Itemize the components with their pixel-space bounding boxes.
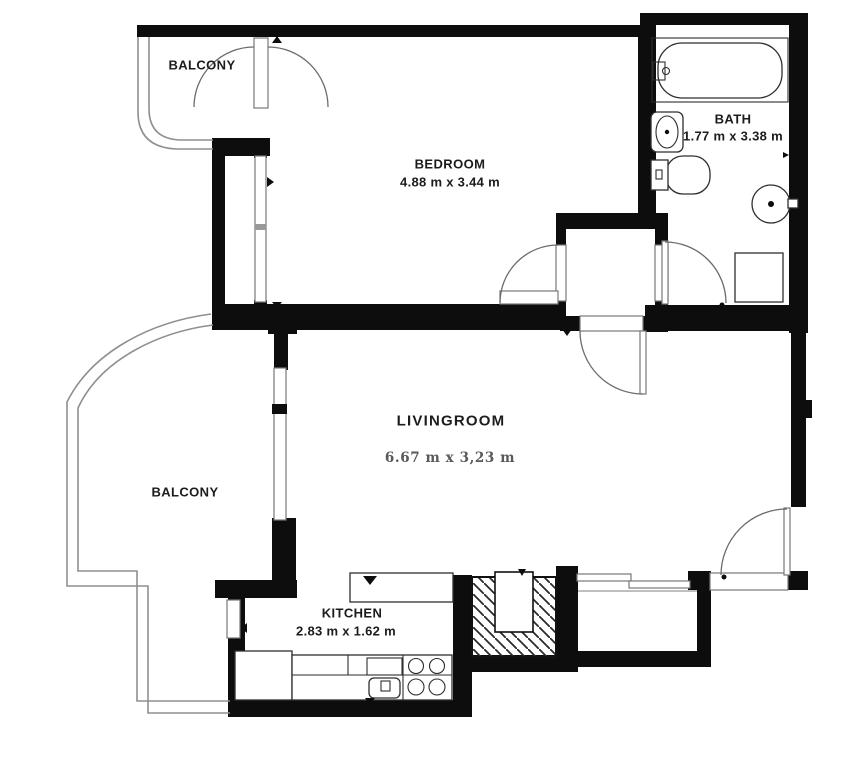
door-opening [580,316,643,331]
wall-segment [137,25,653,37]
hall-livingroom-door [580,316,646,394]
shower-icon [735,253,783,302]
marker-arrow [267,177,274,187]
door-leaf [500,291,558,304]
wall-segment [556,213,668,229]
door-arc [665,242,726,303]
kitchen-window [227,600,240,638]
kitchen-label: KITCHEN [322,606,383,621]
door-stop-dot [720,303,725,308]
sliding-door [577,574,690,588]
wall-segment [798,400,812,418]
balcony-left-label: BALCONY [151,485,218,500]
bedroom-dimensions: 4.88 m x 3.44 m [400,175,500,190]
wall-segment [560,316,582,331]
window-tick [272,404,287,414]
washbasin-icon [651,112,683,152]
sliding-panel [577,574,631,581]
bedroom-label: BEDROOM [415,157,486,172]
wall-segment [688,571,710,590]
livingroom-dimensions: 6.67 m x 3,23 m [385,450,515,466]
door-arc [721,509,787,575]
door-arc [194,47,254,107]
bath-dimensions: 1.77 m x 3.38 m [683,129,783,144]
wall-segment [212,138,225,320]
marker-arrow [783,152,789,158]
wall-segment [215,580,297,598]
toilet-icon [651,156,710,194]
window-tick [255,224,266,230]
entry-door [710,508,790,590]
livingroom-window [274,368,286,520]
door-leaf [784,508,790,575]
bathtub-icon [652,38,788,102]
wall-segment [268,304,297,334]
kitchen-dimensions: 2.83 m x 1.62 m [296,624,396,639]
shaft-duct-box [495,572,533,632]
wall-segment [556,566,578,660]
door-stop-dot [722,575,727,580]
wall-segment [789,13,808,333]
door-leaf [254,38,268,108]
wall-segment [556,229,566,245]
railing-line [149,37,213,140]
floorplan: BALCONY BEDROOM 4.88 m x 3.44 m BATH 1.7… [0,0,848,762]
wall-segment [254,300,267,322]
wall-segment [254,138,267,158]
balcony-railings [67,37,230,713]
bath-label: BATH [715,112,752,127]
wall-segment [645,305,806,331]
bath-fixtures [651,38,798,302]
marker-arrow [562,329,572,336]
door-opening [710,573,788,590]
sliding-panel [629,581,690,588]
fridge-icon [235,651,292,700]
wall-segment [560,651,711,667]
shaft [472,572,556,657]
balcony-top-label: BALCONY [168,58,235,73]
door-arc [268,47,328,107]
balcony-door [194,38,328,108]
wall-segment [228,700,472,717]
bedroom-door [500,245,566,304]
railing-line [78,325,230,701]
livingroom-label: LIVINGROOM [397,413,506,430]
railing-line [67,314,230,713]
door-leaf [640,331,646,394]
door-arc [580,331,643,394]
wall-segment [640,13,808,25]
wall-segment [453,575,472,717]
wall-segment [791,331,806,507]
marker-arrow [272,36,282,43]
wall-segment [274,330,288,370]
door-leaf [662,241,668,304]
bath-door [655,241,726,308]
